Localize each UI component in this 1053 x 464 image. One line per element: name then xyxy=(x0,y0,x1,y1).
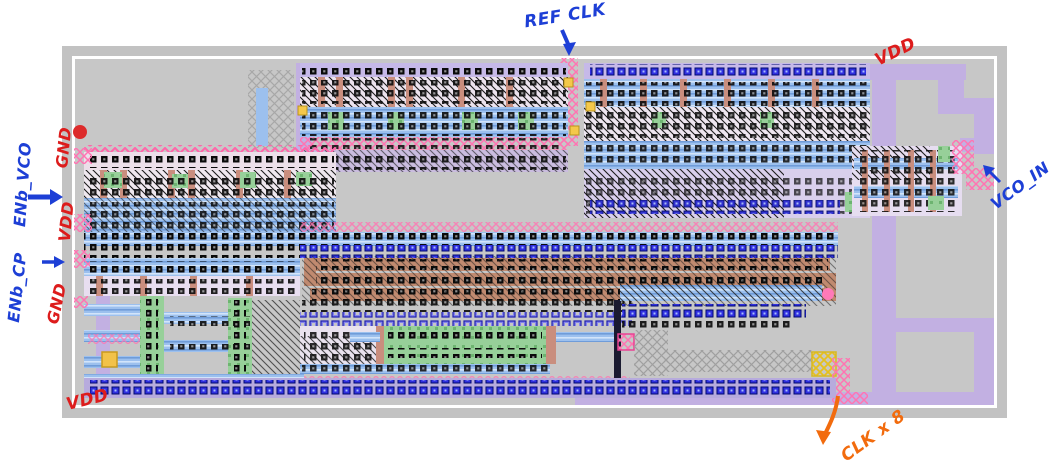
screenshot-stage: REF CLK VDD GND ENb_VCO VDD ENb_CP GND V… xyxy=(0,0,1053,464)
enb-cp-arrow-icon xyxy=(40,254,66,270)
left-mid-cell-block xyxy=(84,145,336,232)
vco-in-arrow-icon xyxy=(982,164,1004,186)
topleft-fill-region xyxy=(248,70,294,148)
chip-layout xyxy=(0,0,1053,464)
ref-clk-arrow-icon xyxy=(556,28,582,58)
vco-buffer-block xyxy=(852,146,962,216)
clk-x8-arrow-icon xyxy=(814,392,850,448)
top-middle-cell-block xyxy=(300,63,568,172)
top-right-cell-block xyxy=(584,63,870,218)
